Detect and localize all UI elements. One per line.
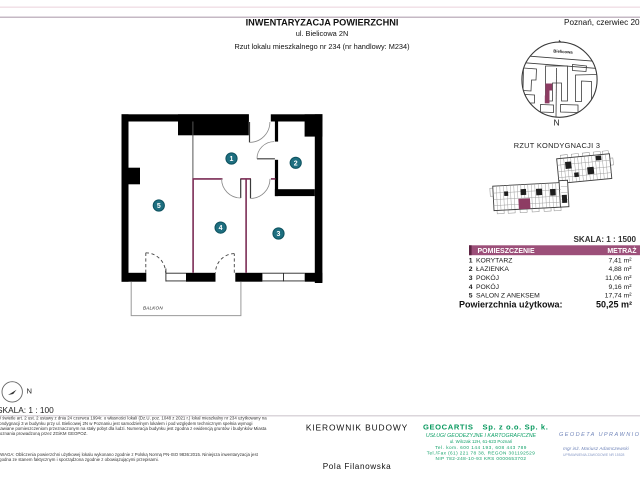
svg-text:3: 3 <box>277 231 281 238</box>
svg-text:Pola Filanowska: Pola Filanowska <box>323 462 392 471</box>
svg-text:Rzut lokalu mieszkalnego nr 23: Rzut lokalu mieszkalnego nr 234 (nr hand… <box>234 42 409 51</box>
svg-text:METRAŻ: METRAŻ <box>607 247 637 255</box>
svg-text:50,25 m²: 50,25 m² <box>596 300 632 310</box>
svg-text:1: 1 <box>230 156 234 163</box>
svg-text:5: 5 <box>157 203 161 210</box>
svg-text:ul. Wilczak 12H, 61-623 Poznań: ul. Wilczak 12H, 61-623 Poznań <box>450 439 513 444</box>
svg-text:7,41 m²: 7,41 m² <box>608 257 632 264</box>
svg-text:11,06 m²: 11,06 m² <box>605 275 632 282</box>
svg-text:POKÓJ: POKÓJ <box>476 282 499 291</box>
svg-text:UPRAWNIENIA ZAWODOWE NR 15528: UPRAWNIENIA ZAWODOWE NR 15528 <box>563 453 624 457</box>
svg-text:3: 3 <box>469 275 473 282</box>
svg-text:Powierzchnia użytkowa:: Powierzchnia użytkowa: <box>459 300 563 310</box>
svg-text:1: 1 <box>469 257 473 264</box>
svg-text:GEOCARTISSp. z o.o. Sp. k.: GEOCARTISSp. z o.o. Sp. k. <box>423 422 548 431</box>
svg-text:ul. Bielicowa 2N: ul. Bielicowa 2N <box>296 29 349 38</box>
svg-text:POMIESZCZENIE: POMIESZCZENIE <box>478 248 536 255</box>
svg-text:zgodna ze stanem faktycznym i: zgodna ze stanem faktycznym i sporządzon… <box>0 457 159 462</box>
svg-text:N: N <box>27 387 32 396</box>
svg-text:ŁAZIENKA: ŁAZIENKA <box>476 266 509 273</box>
svg-text:SKALA: 1 : 100: SKALA: 1 : 100 <box>0 405 54 415</box>
svg-text:4: 4 <box>219 225 223 232</box>
svg-text:Tel./Fax (61) 221 78 38, REGON: Tel./Fax (61) 221 78 38, REGON 301192529 <box>427 451 535 456</box>
svg-text:SKALA: 1 : 1500: SKALA: 1 : 1500 <box>573 235 636 244</box>
svg-text:KORYTARZ: KORYTARZ <box>476 257 512 264</box>
svg-text:4: 4 <box>469 284 473 291</box>
svg-text:4,88 m²: 4,88 m² <box>608 266 632 273</box>
svg-text:BALKON: BALKON <box>143 306 163 311</box>
svg-text:Poznań, czerwiec 2024: Poznań, czerwiec 2024 <box>564 18 640 27</box>
svg-text:mgr inż. Mariusz Adamczewski: mgr inż. Mariusz Adamczewski <box>563 446 630 452</box>
svg-text:N: N <box>554 118 560 128</box>
svg-text:POKÓJ: POKÓJ <box>476 273 499 282</box>
svg-text:KIEROWNIK BUDOWY: KIEROWNIK BUDOWY <box>306 423 408 433</box>
svg-text:Tel. kom. 600 144 193, 608 443: Tel. kom. 600 144 193, 608 443 789 <box>435 445 527 450</box>
svg-text:Poznania prowadzoną przez ZGiK: Poznania prowadzoną przez ZGiKM GEOPOZ. <box>0 431 88 436</box>
svg-text:USŁUGI GEODEZYJNE I KARTOGRAFI: USŁUGI GEODEZYJNE I KARTOGRAFICZNE <box>426 433 537 439</box>
svg-text:INWENTARYZACJA POWIERZCHNI: INWENTARYZACJA POWIERZCHNI <box>246 18 399 28</box>
svg-text:GEODETA UPRAWNIONY: GEODETA UPRAWNIONY <box>559 432 640 438</box>
svg-text:9,16 m²: 9,16 m² <box>608 284 632 291</box>
svg-text:NIP 782-248-10-93 KRS 0000: NIP 782-248-10-93 KRS 0000653702 <box>436 456 527 461</box>
svg-text:2: 2 <box>294 160 298 167</box>
svg-text:2: 2 <box>469 266 473 273</box>
svg-text:RZUT KONDYGNACJI 3: RZUT KONDYGNACJI 3 <box>514 141 601 150</box>
